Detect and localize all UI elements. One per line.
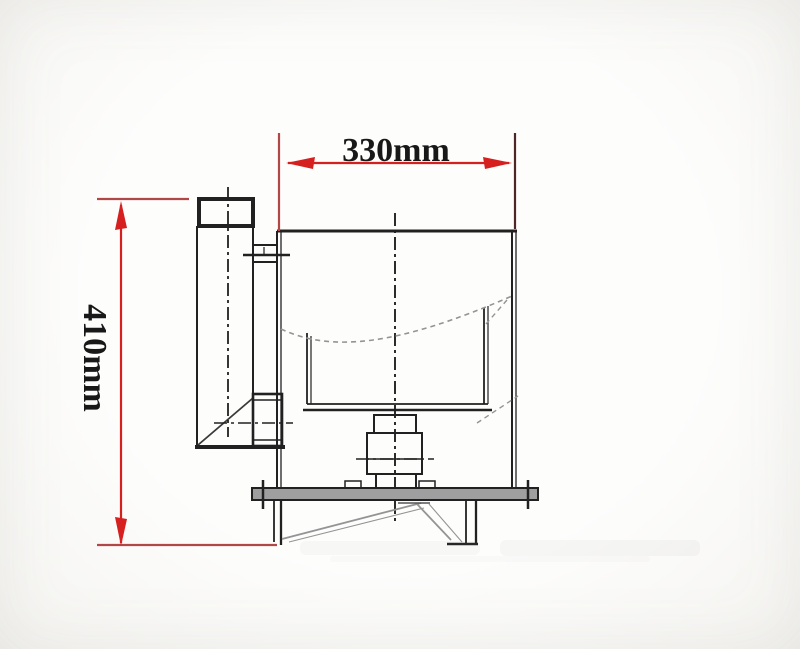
width-arrow-right xyxy=(483,157,512,169)
hidden-lines xyxy=(281,296,518,542)
left-brace-outer xyxy=(282,503,421,539)
height-arrow-bottom xyxy=(115,517,127,546)
scan-artifacts xyxy=(300,540,700,562)
machine-structure xyxy=(195,187,538,545)
dimension-lines xyxy=(121,163,509,543)
connector-stub xyxy=(253,245,277,262)
left-brace-inner xyxy=(289,508,424,542)
hidden-cone-edge-upper xyxy=(486,300,507,324)
height-dimension-label: 410mm xyxy=(76,304,113,412)
hidden-cone-curve xyxy=(281,296,512,342)
drawing-canvas: 330mm 410mm xyxy=(0,0,800,649)
width-dimension-label: 330mm xyxy=(342,132,450,169)
base-plate xyxy=(252,488,538,500)
width-arrow-left xyxy=(286,157,315,169)
funnel-diagonal xyxy=(198,398,253,445)
column-cap xyxy=(199,199,253,226)
extension-lines xyxy=(97,133,515,545)
motor-bottom-section xyxy=(376,474,416,489)
mount-bolt-left xyxy=(345,481,361,488)
height-arrow-top xyxy=(115,201,127,230)
technical-drawing: 330mm 410mm xyxy=(0,0,800,649)
mount-bolt-right xyxy=(419,481,435,488)
